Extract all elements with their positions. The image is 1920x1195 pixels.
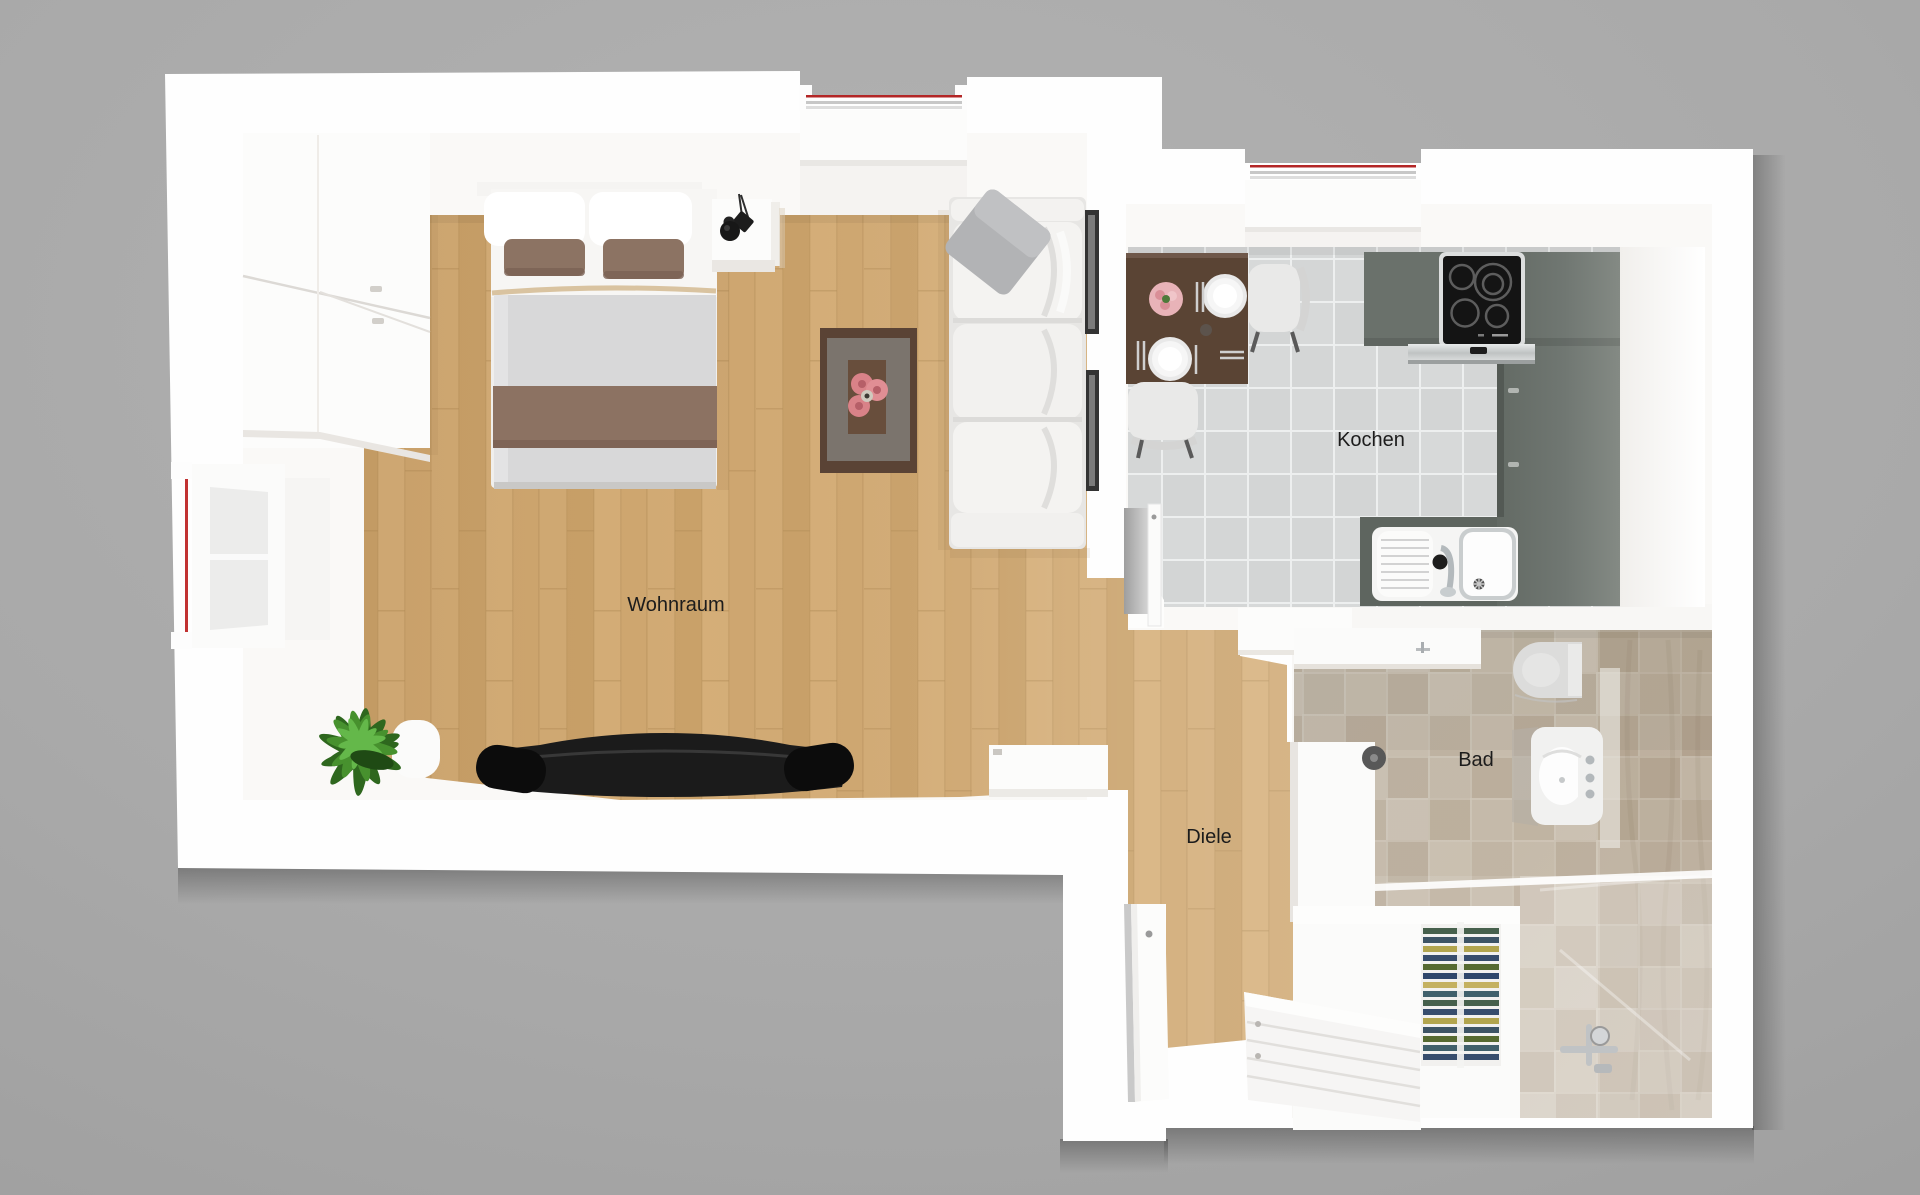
svg-text:Kochen: Kochen bbox=[1337, 429, 1405, 451]
svg-text:Wohnraum: Wohnraum bbox=[627, 594, 724, 616]
svg-text:Bad: Bad bbox=[1458, 749, 1494, 771]
svg-text:Diele: Diele bbox=[1186, 826, 1232, 848]
